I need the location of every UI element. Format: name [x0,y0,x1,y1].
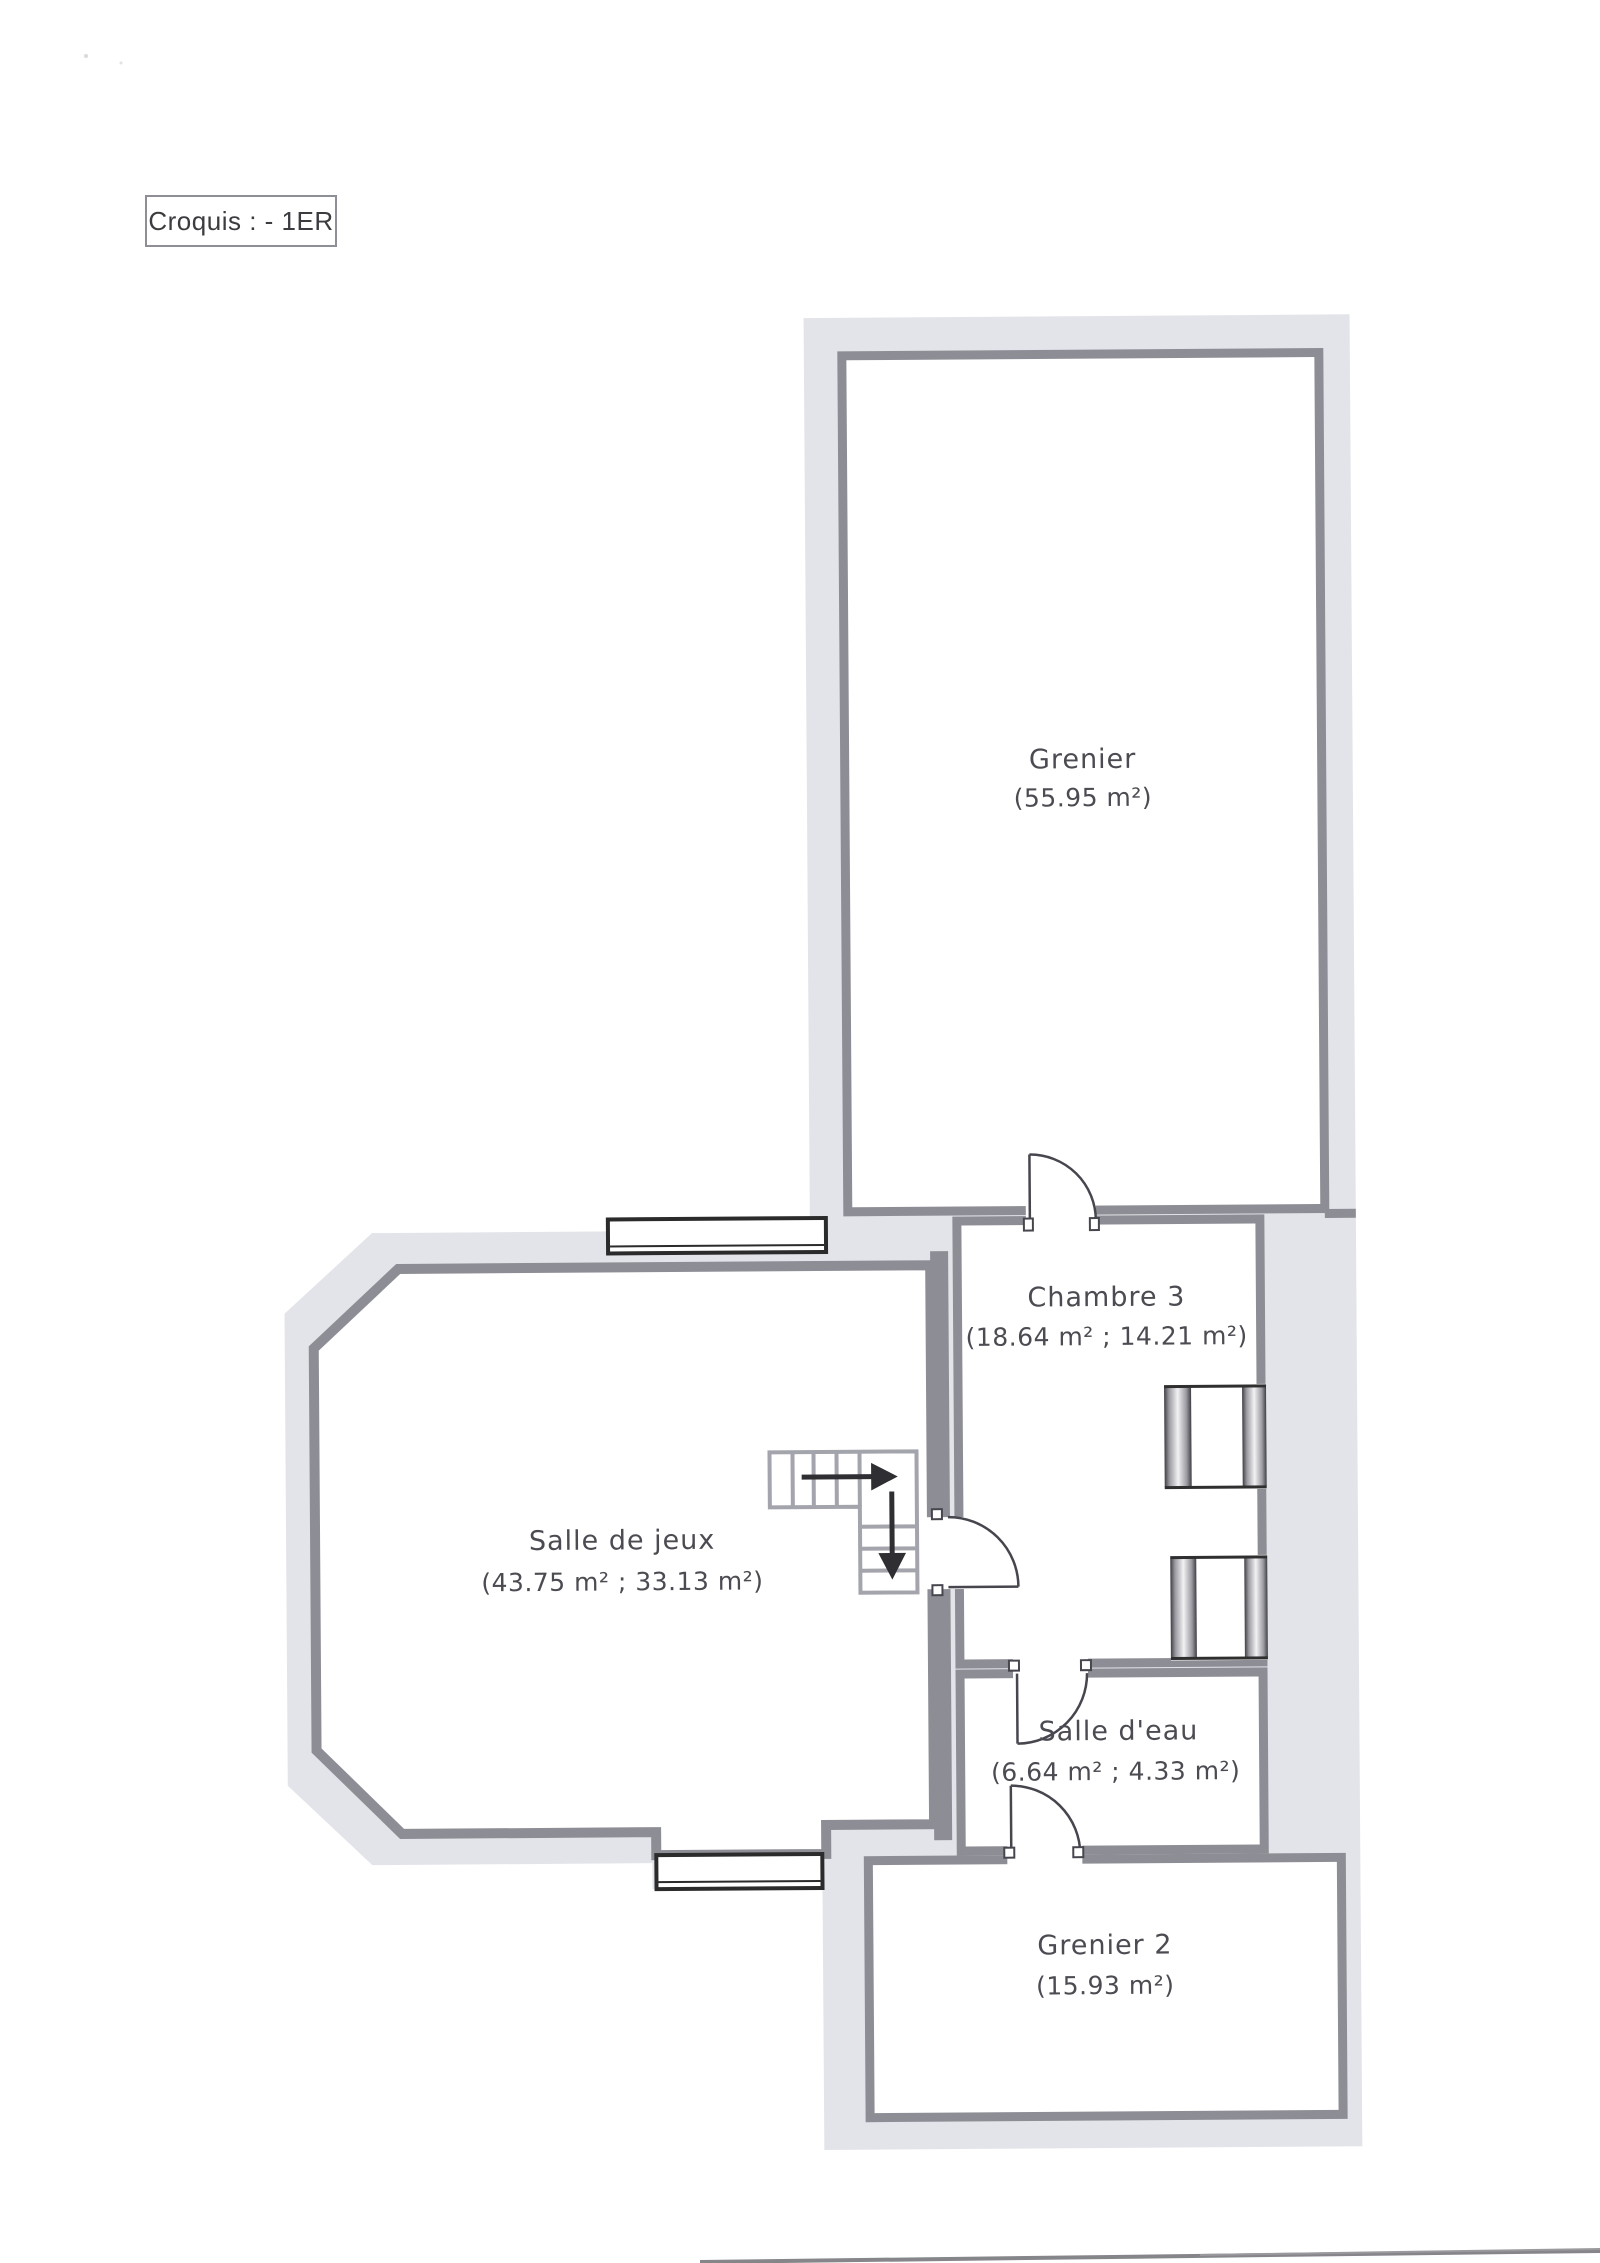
window-symbol-north [608,1218,826,1254]
title-box: Croquis : - 1ER [146,196,336,246]
page-title: Croquis : - 1ER [148,206,333,236]
radiator-symbol-1 [1164,1384,1267,1490]
room-label-grenier2-name: Grenier 2 [1037,1930,1172,1962]
doorway-grenier2 [1007,1840,1082,1875]
room-label-chambre3-name: Chambre 3 [1027,1281,1185,1313]
doorway-grenier [1026,1198,1096,1238]
room-label-grenier-area: (55.95 m²) [1014,783,1153,813]
radiator-symbol-2 [1170,1555,1268,1661]
room-label-chambre3-area: (18.64 m² ; 14.21 m²) [966,1321,1248,1352]
room-label-salle-de-jeux-name: Salle de jeux [529,1525,716,1557]
room-label-salle-deau-area: (6.64 m² ; 4.33 m²) [991,1756,1240,1787]
room-label-grenier-name: Grenier [1029,744,1137,776]
room-grenier-floor [842,352,1325,1211]
doorway-chambre3 [924,1517,965,1589]
room-label-salle-de-jeux-area: (43.75 m² ; 33.13 m²) [481,1566,763,1597]
room-salle-de-jeux-floor [313,1265,934,1857]
room-label-grenier2-area: (15.93 m²) [1036,1971,1175,2001]
window-symbol-south [656,1854,822,1889]
floor-plan-scan: Croquis : - 1ER [0,0,1600,2263]
doorway-salle-deau [1013,1658,1088,1682]
room-label-salle-deau-name: Salle d'eau [1038,1715,1198,1747]
